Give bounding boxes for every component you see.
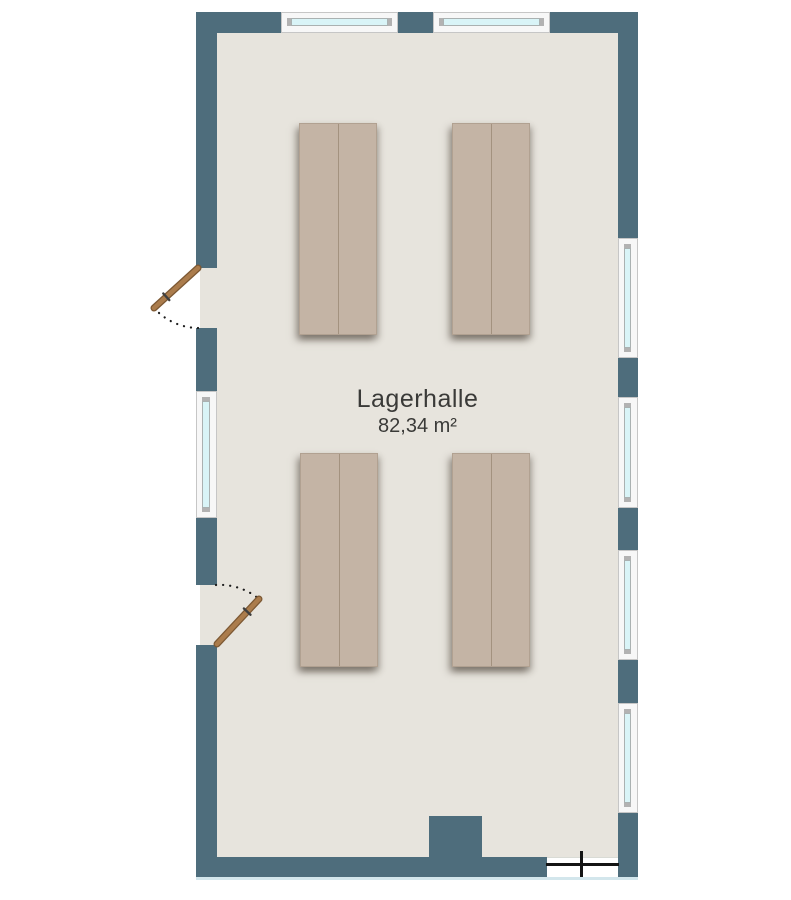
window-cap [624, 650, 631, 654]
window-top-2 [433, 12, 550, 33]
window-cap [202, 508, 210, 512]
window-glass [443, 18, 540, 26]
wall-bottom [196, 857, 547, 877]
storage-rack-3 [300, 453, 378, 667]
window-left-1 [196, 391, 217, 518]
storage-rack-2 [452, 123, 530, 335]
opening-marker-tick [580, 851, 583, 877]
door-lower-left [205, 575, 280, 655]
floorplan: Lagerhalle 82,34 m² [0, 0, 791, 900]
window-glass [624, 713, 631, 803]
door-leaf [217, 599, 259, 644]
window-cap [624, 348, 631, 352]
wall-right-5 [618, 813, 638, 877]
window-cap [624, 803, 631, 807]
rack-divider [491, 124, 492, 334]
window-glass [291, 18, 388, 26]
window-cap [540, 18, 544, 26]
wall-base-shadow [196, 877, 638, 880]
window-right-1 [618, 238, 638, 358]
window-cap [624, 498, 631, 502]
wall-left-1 [196, 12, 217, 268]
window-right-2 [618, 397, 638, 508]
wall-right-1 [618, 33, 638, 238]
room-name: Lagerhalle [217, 386, 618, 413]
storage-rack-4 [452, 453, 530, 667]
door-swing-arc [216, 585, 259, 599]
wall-right-2 [618, 358, 638, 397]
room-area: 82,34 m² [217, 415, 618, 438]
window-cap [388, 18, 392, 26]
pillar [429, 816, 482, 857]
wall-top-middle [398, 12, 433, 33]
rack-divider [338, 124, 339, 334]
room-floor [217, 33, 618, 857]
room-label: Lagerhalle 82,34 m² [217, 386, 618, 438]
window-glass [202, 401, 210, 508]
window-glass [624, 407, 631, 498]
door-leaf [154, 268, 198, 308]
window-right-4 [618, 703, 638, 813]
window-glass [624, 560, 631, 650]
rack-divider [491, 454, 492, 666]
storage-rack-1 [299, 123, 377, 335]
wall-top-right [550, 12, 638, 33]
window-top-1 [281, 12, 398, 33]
window-glass [624, 248, 631, 348]
wall-right-3 [618, 508, 638, 550]
rack-divider [339, 454, 340, 666]
wall-right-4 [618, 660, 638, 703]
wall-left-4 [196, 645, 217, 877]
door-swing-arc [154, 308, 198, 328]
door-upper-left [140, 260, 230, 340]
window-right-3 [618, 550, 638, 660]
